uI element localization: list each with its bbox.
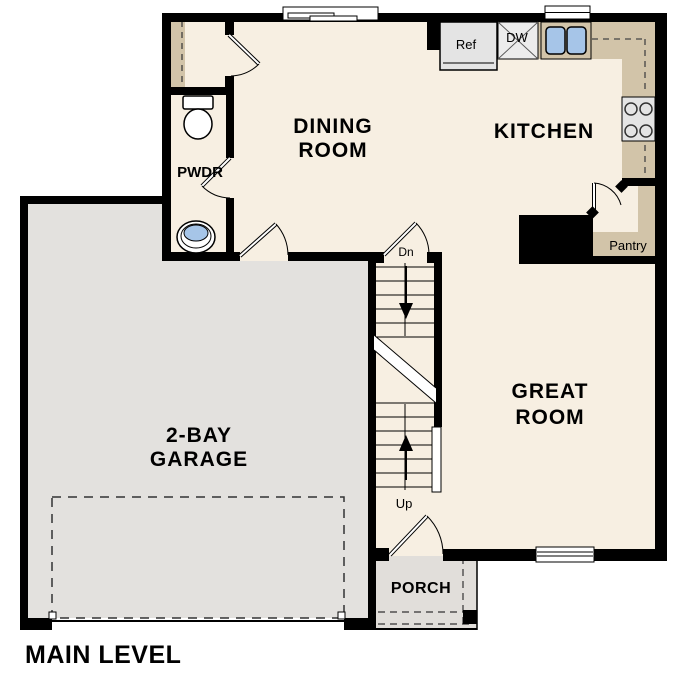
pwdr-sink-basin [184,225,208,241]
porch-label: PORCH [391,580,451,597]
wall-kitchen-stub [427,13,440,50]
stair-railing [432,427,441,492]
kitchen-sink-bowl-left [546,27,565,54]
garage-door-line [52,620,344,622]
stairs-down-label: Dn [398,245,413,259]
closet-shelf [171,21,185,90]
stairs-up-label: Up [396,496,413,511]
dining-room-label-line1: DINING [293,115,373,138]
floor-plan-canvas: DINING ROOM KITCHEN GREAT ROOM 2-BAY GAR… [0,0,687,687]
porch-post [463,610,477,624]
black-mass-chase [519,215,593,264]
pwdr-label: PWDR [177,164,223,181]
wall-garage-left [20,196,28,630]
kitchen-sink-bowl-right [567,27,586,54]
wall-pantry-bottom [593,256,667,264]
pantry-label: Pantry [609,238,647,253]
wall-pwdr-right-b [226,198,234,260]
toilet-tank [183,96,213,109]
wall-garage-bottom-west [20,618,52,630]
wall-left-upper [162,13,171,261]
front-door-jamb [376,548,389,561]
porch-bottom-edge [376,628,477,630]
dishwasher-label: DW [506,30,528,45]
refrigerator-label: Ref [456,37,477,52]
toilet-bowl [184,109,212,139]
dining-bay-window-sash-2 [310,16,357,21]
dining-room-label-line2: ROOM [298,139,367,162]
wall-right [655,13,667,561]
wall-pantry-top [622,178,667,186]
wall-garage-top [20,196,162,204]
wall-closet-right-b [225,76,234,95]
wall-pwdr-right-a [226,95,234,158]
wall-dining-stub [234,252,240,261]
wall-closet-right-a [225,13,234,35]
garage-label-line2: GARAGE [150,448,248,471]
plan-title: MAIN LEVEL [25,641,181,669]
kitchen-label: KITCHEN [494,120,594,143]
garage-dash-corner-east [338,612,345,619]
wall-dining-garage [288,252,376,261]
floor-plan-drawing: DINING ROOM KITCHEN GREAT ROOM 2-BAY GAR… [0,0,687,687]
wall-closet-bottom [162,87,234,95]
great-room-window [536,547,594,562]
great-room-label-line2: ROOM [515,406,584,429]
garage-dash-corner-west [49,612,56,619]
wall-top [162,13,667,22]
wall-stairs-left [368,252,376,630]
garage-label-line1: 2-BAY [166,424,232,447]
garage-floor [28,204,368,618]
great-room-label-line1: GREAT [512,380,589,403]
